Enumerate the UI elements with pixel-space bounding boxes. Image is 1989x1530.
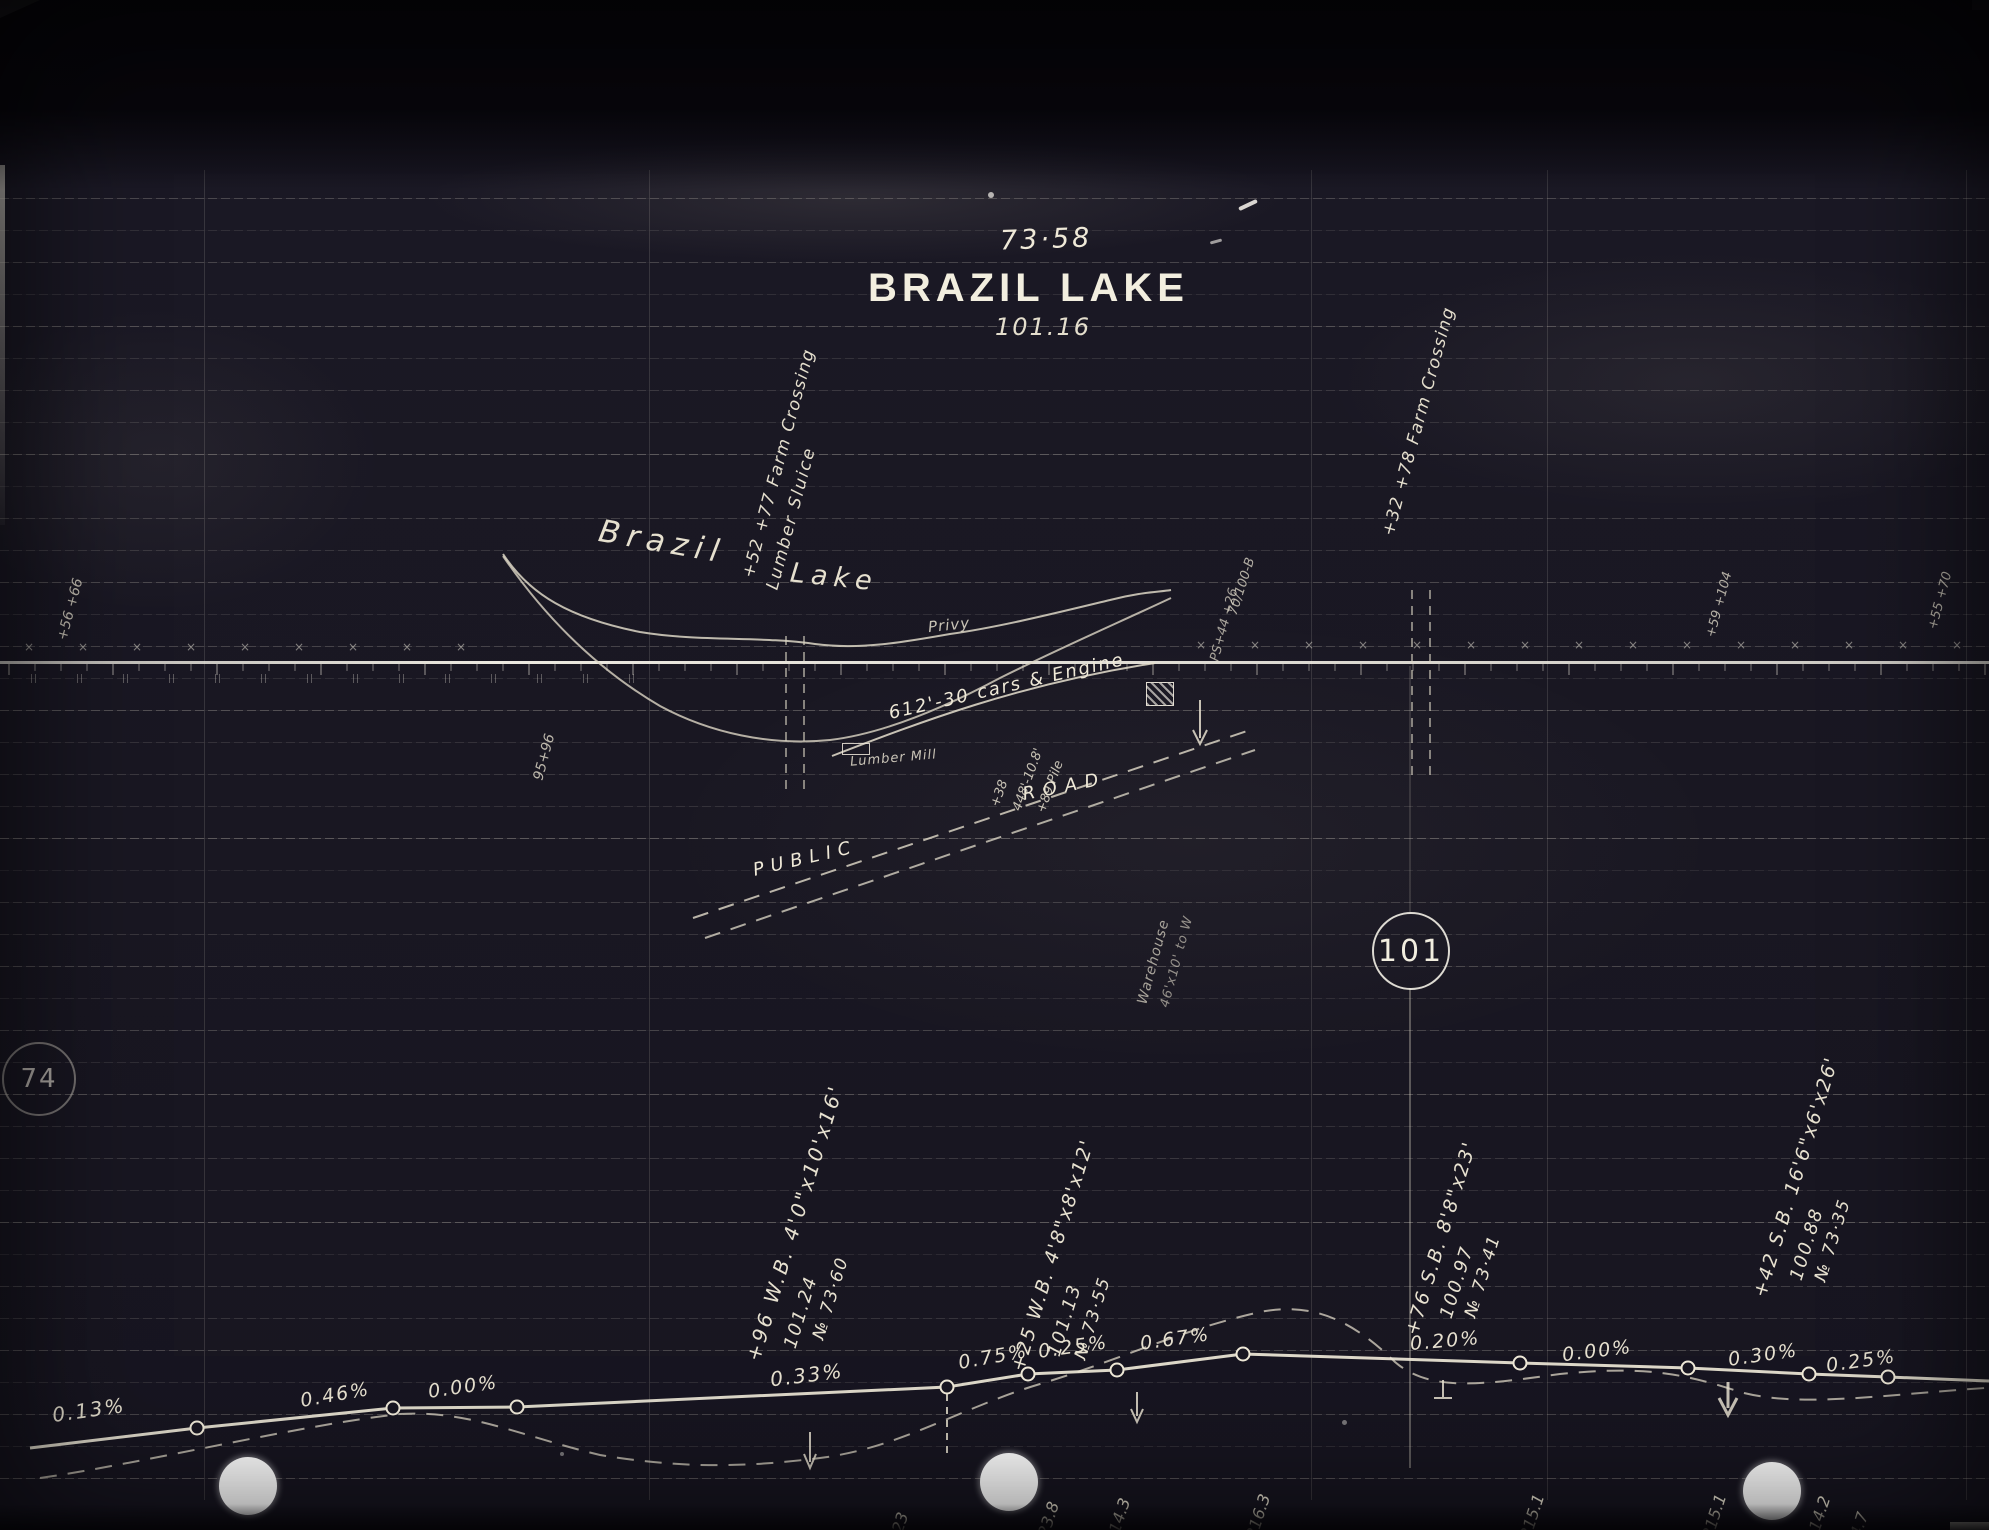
siding-line	[832, 663, 1155, 756]
mile-circle-101: 101	[1372, 912, 1450, 990]
warehouse-building	[1146, 682, 1174, 706]
punch-hole-left	[219, 1457, 277, 1515]
plan-profile-drawing	[0, 0, 1989, 1530]
public-road-line-1	[693, 730, 1250, 918]
punch-hole-right	[1743, 1462, 1801, 1520]
farm-crossing-left-lines	[786, 636, 804, 792]
page-title: BRAZIL LAKE	[868, 266, 1189, 311]
punch-hole-center	[980, 1453, 1038, 1511]
title-mileage-bottom: 101.16	[995, 313, 1091, 341]
scan-edge-top-right	[1972, 0, 1989, 10]
scan-edge-bottom-right	[1950, 1522, 1989, 1530]
lumber-mill-building	[842, 743, 870, 755]
mile-circle-101-label: 101	[1378, 934, 1444, 969]
dust-speck-5	[560, 1452, 564, 1456]
scan-edge-left-strip	[0, 165, 5, 525]
dust-speck-3	[988, 192, 994, 198]
title-mileage-top: 73·58	[999, 222, 1092, 256]
mile-circle-74: 74	[2, 1042, 76, 1116]
dust-speck-4	[1342, 1420, 1347, 1425]
warehouse-arrow	[1193, 700, 1207, 744]
blueprint-sheet: ××××××××××××××××××××××××||||||||||||||||…	[0, 0, 1989, 1530]
public-road-line-2	[705, 750, 1255, 938]
mile-circle-74-label: 74	[20, 1064, 57, 1094]
farm-crossing-right-lines	[1412, 590, 1430, 778]
